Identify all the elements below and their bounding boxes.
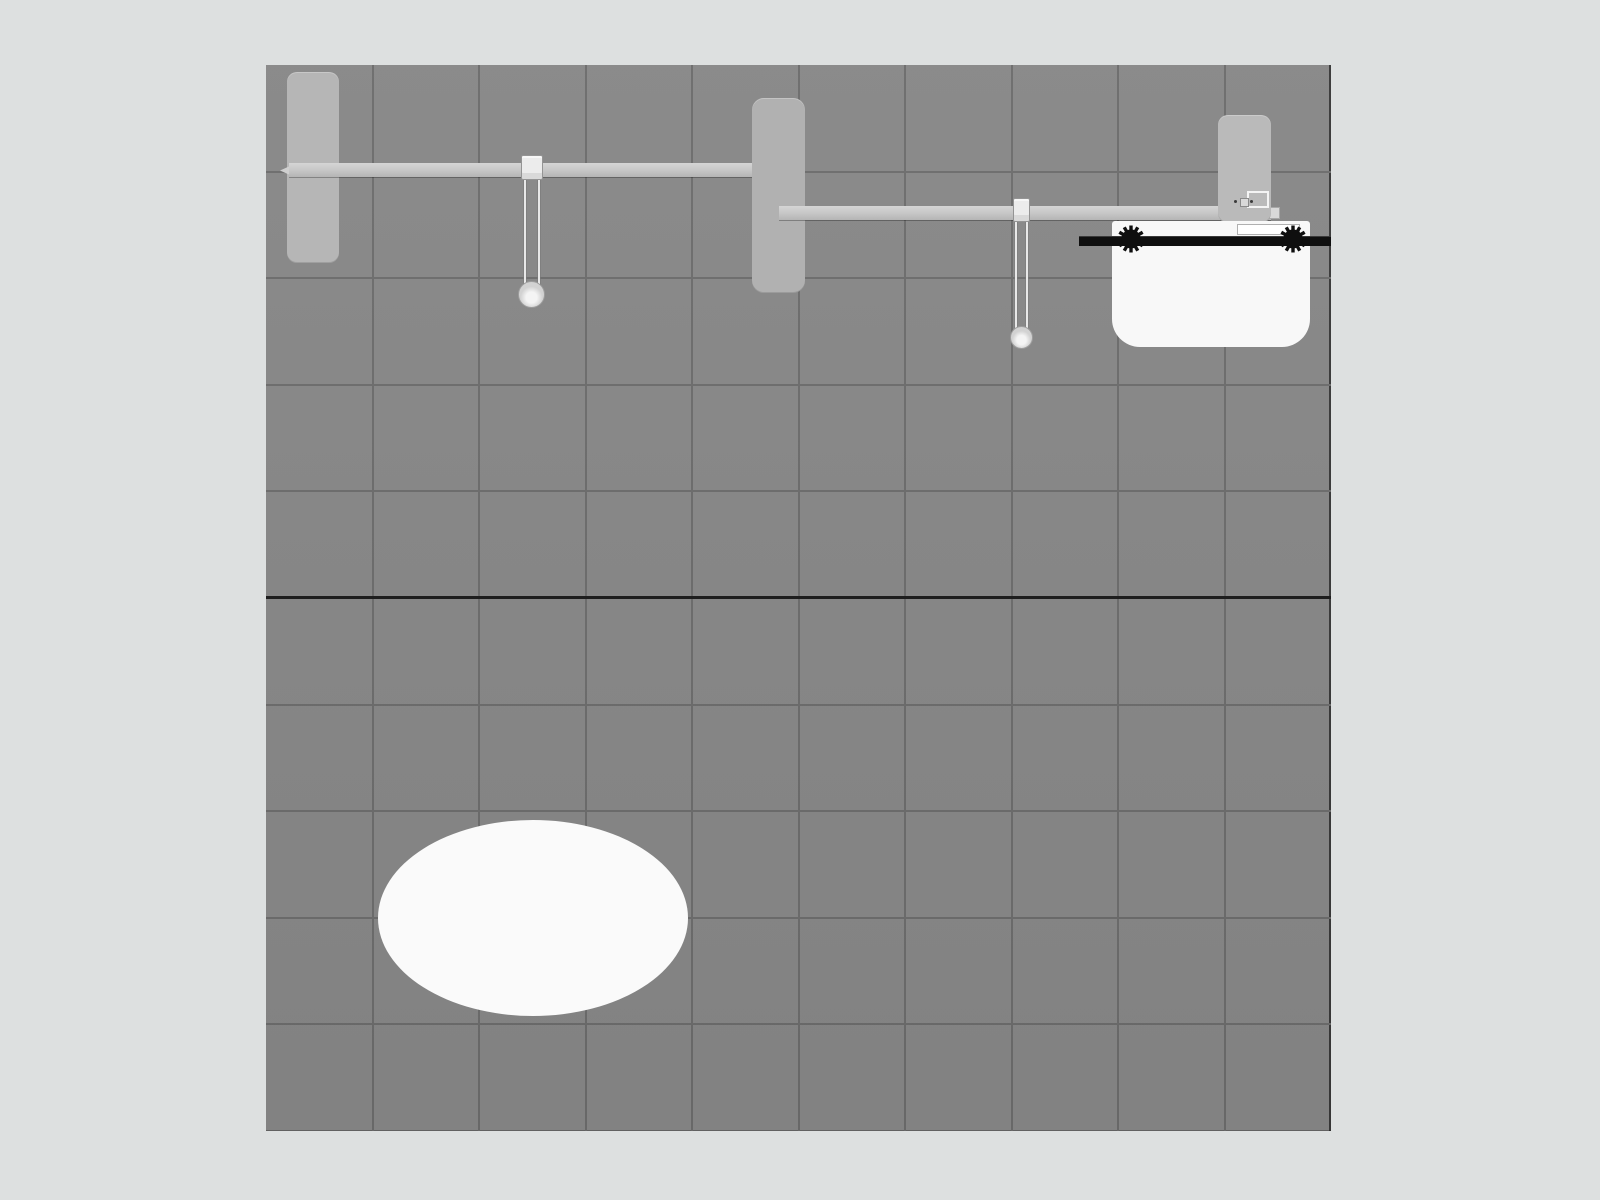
- oval-table[interactable]: [378, 820, 688, 1016]
- booth-floor: [266, 65, 1331, 1131]
- truss-clamp-icon[interactable]: [1116, 224, 1146, 254]
- grid-line-horizontal-dark: [266, 596, 1331, 599]
- light-fixture-left-clamp[interactable]: [521, 155, 543, 180]
- light-fixture-right-head[interactable]: [1010, 326, 1033, 349]
- grid-line-horizontal: [266, 490, 1331, 492]
- light-fixture-left-head[interactable]: [518, 281, 545, 308]
- light-fixture-left-rod: [524, 178, 526, 288]
- light-fixture-right-clamp[interactable]: [1013, 198, 1030, 222]
- canvas-background: [0, 0, 1600, 1200]
- counter-mount-connector: [1240, 198, 1249, 207]
- light-fixture-right-rod: [1015, 220, 1017, 328]
- counter-bolt: [1234, 200, 1237, 203]
- counter-bolt: [1250, 200, 1253, 203]
- grid-line-horizontal: [266, 704, 1331, 706]
- grid-line-horizontal: [266, 1023, 1331, 1025]
- light-fixture-right-rod: [1026, 220, 1028, 328]
- wall-panel-center[interactable]: [752, 98, 805, 293]
- grid-line-horizontal: [266, 810, 1331, 812]
- grid-line-horizontal: [266, 384, 1331, 386]
- truss-clamp-icon[interactable]: [1278, 224, 1308, 254]
- light-fixture-left-rod: [538, 178, 540, 288]
